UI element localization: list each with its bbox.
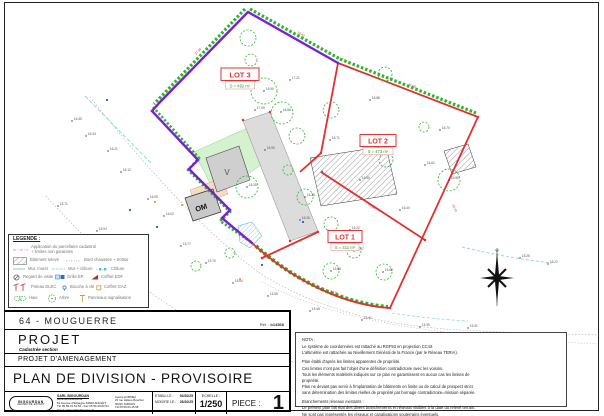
legend-box: LEGENDE : Application du parcellaire cad… (8, 234, 149, 308)
spot-point (280, 111, 281, 112)
legend-item-label: Bouche à clé (70, 285, 92, 290)
spot-elevation-label: 16.43 (88, 132, 96, 136)
firm-details: SARL BIGOURDAN Géomètres-Experts 51 Aven… (57, 392, 152, 414)
spot-elevation-label: 16.86 (283, 108, 291, 112)
etabli-date: 03/10/25 (180, 394, 193, 398)
courtyard (243, 112, 318, 241)
spot-elevation-label: 16.58 (451, 176, 459, 180)
haie-icon (13, 295, 27, 302)
edge-length-label: 26.42 (451, 204, 458, 213)
spot-point (267, 295, 268, 296)
spot-elevation-label: 16.12 (123, 168, 131, 172)
spot-elevation-label: 15.22 (550, 260, 558, 264)
lot2-area: S = 473 m² (368, 149, 389, 154)
spot-elevation-label: 15.26 (522, 254, 530, 258)
legend-item-label: Coffret EDF (101, 275, 123, 280)
boundary-road-purple (152, 12, 338, 243)
spot-elevation-label: 16.35 (307, 193, 315, 197)
coffret-gaz-icon (154, 201, 156, 203)
legend-title: LEGENDE : (13, 237, 144, 243)
spot-point (263, 90, 264, 91)
spot-elevation-label: 15.48 (312, 307, 320, 311)
spot-point (382, 271, 383, 272)
edge-length-label: 21.60 (367, 202, 376, 210)
wall-fence-icon (52, 267, 66, 271)
etabli-label: ETABLI LE : (155, 394, 173, 398)
spot-point (289, 79, 290, 80)
scale-value: 1/250 (196, 399, 226, 409)
spot-elevation-label: 16.55 (362, 176, 370, 180)
spot-point (361, 319, 362, 320)
nota-line: Ne sont pas représentés les réseaux et c… (302, 412, 560, 416)
nota-lines: Le système de coordonnées est rattaché a… (302, 344, 560, 416)
spot-elevation-label: 15.35 (422, 323, 430, 327)
spot-point (369, 99, 370, 100)
spot-elevation-label: 17.21 (292, 76, 300, 80)
spot-elevation-label: 16.22 (352, 226, 360, 230)
tree-icon (245, 54, 257, 66)
spot-point (120, 171, 121, 172)
spot-point (419, 326, 420, 327)
ref-value: b14568 (270, 322, 284, 327)
cadastral-line-icon (13, 247, 29, 253)
spot-elevation-label: 16.02 (166, 212, 174, 216)
spot-point (96, 230, 97, 231)
spot-elevation-label: 15.77 (183, 242, 191, 246)
lot1-label: LOT 1 S = 411 m² (328, 231, 362, 251)
tree-icon (225, 248, 235, 258)
spot-point (180, 245, 181, 246)
spot-elevation-label: 16.30 (302, 216, 310, 220)
lot2-name: LOT 2 (368, 139, 388, 146)
title-block: 64 - MOUGUERRE Réf. : b14568 PROJET Cada… (4, 310, 291, 412)
spot-point (329, 139, 330, 140)
bouche-a-cle-icon (261, 264, 263, 266)
spot-point (309, 310, 310, 311)
building-hatch-icon (13, 257, 28, 265)
legend-item-label: Arbre (59, 296, 75, 301)
legend-item-label: Panneaux signalisation (88, 296, 131, 301)
lot1-area: S = 411 m² (335, 245, 356, 250)
wall-line-icon (13, 267, 26, 271)
bouche-a-cle-icon (156, 226, 158, 228)
firm-logo: BIGOURDAN GÉOMÈTRE-EXPERT (5, 392, 57, 414)
spot-point (205, 262, 206, 263)
spot-elevation-label: 15.64 (235, 279, 243, 283)
piece-label: PIECE : (232, 399, 260, 408)
spot-elevation-label: 15.55 (270, 292, 278, 296)
modifie-label: MODIFIE LE : (155, 400, 176, 404)
bouche-a-cle-icon (61, 285, 68, 291)
spot-point (85, 135, 86, 136)
spot-elevation-label: 15.80 (385, 268, 393, 272)
spot-point (163, 215, 164, 216)
legend-item-label: Mur, muret (28, 267, 48, 272)
spot-elevation-label: 16.21 (110, 147, 118, 151)
tree-icon (324, 217, 338, 231)
commune-title: 64 - MOUGUERRE (19, 316, 118, 326)
tree-icon (419, 122, 429, 132)
spot-elevation-label: 16.40 (402, 206, 410, 210)
legend-item-label: Grille EP (67, 275, 87, 280)
spot-point (424, 164, 425, 165)
spot-elevation-label: 16.70 (442, 126, 450, 130)
coffret-gaz-icon (96, 285, 102, 291)
legend-item-label: Poteau ELEC (31, 285, 57, 290)
spot-point (71, 120, 72, 121)
reference: Réf. : b14568 (260, 322, 284, 327)
spot-point (359, 179, 360, 180)
spot-point (107, 150, 108, 151)
spot-point (399, 209, 400, 210)
spot-elevation-label: 16.28 (249, 183, 257, 187)
piece-number: 1 (273, 392, 284, 415)
spot-elevation-label: 16.95 (266, 87, 274, 91)
bouche-a-cle-icon (129, 209, 131, 211)
drawing-sheet: 16.4516.4316.2115.7115.9416.1216.0516.02… (0, 0, 604, 416)
spot-elevation-label: 16.90 (267, 146, 275, 150)
nota-box: NOTA : Le système de coordonnées est rat… (295, 332, 567, 407)
spot-point (299, 219, 300, 220)
coffret-gaz-icon (239, 278, 241, 280)
tree-icon (191, 261, 201, 271)
spot-point (467, 327, 468, 328)
ref-label: Réf. : (260, 322, 270, 327)
spot-point (147, 198, 148, 199)
panneaux-icon (79, 294, 86, 303)
spot-point (330, 270, 331, 271)
spot-point (246, 186, 247, 187)
firm-line: Email : bigourdan@orange.fr (57, 409, 115, 413)
poteau-elec-icon (13, 283, 29, 292)
scale-label: ECHELLE : (196, 394, 226, 398)
coffret-edf-icon (91, 274, 99, 280)
lot1-name: LOT 1 (335, 235, 355, 242)
spot-elevation-label: 16.71 (332, 136, 340, 140)
spot-point (232, 282, 233, 283)
lot3-area: S = 492 m² (230, 83, 251, 88)
spot-elevation-label: 15.94 (99, 227, 107, 231)
scale-cell: ECHELLE : 1/250 (195, 392, 226, 414)
lot3-name: LOT 3 (229, 71, 250, 80)
grille-ep-icon (55, 274, 65, 280)
cadastre-note: Cadastrée section (19, 347, 58, 352)
legend-item-label: Mur + clôture (68, 267, 92, 272)
spot-elevation-label: 16.05 (150, 195, 158, 199)
dates-cell: ETABLI LE : 03/10/25 MODIFIE LE : 28/10/… (152, 392, 195, 414)
parking-label: V (224, 168, 230, 177)
legend-item-label: Clôture (111, 267, 125, 272)
legend-item-label: Bord chaussée + trottoir (84, 258, 129, 263)
spot-point (439, 129, 440, 130)
spot-point (547, 263, 548, 264)
spot-elevation-label: 16.62 (427, 161, 435, 165)
spot-elevation-label: 15.70 (208, 259, 216, 263)
modifie-date: 28/10/25 (180, 400, 193, 404)
tree-icon (240, 30, 256, 46)
piece-cell: PIECE : 1 (226, 392, 289, 414)
legend-item-label: Regard de visite (23, 275, 51, 280)
project-heading: PROJET (18, 332, 81, 347)
spot-elevation-label: 15.31 (470, 324, 478, 328)
project-subtitle: PROJET D'AMENAGEMENT (5, 353, 289, 366)
north-arrow-icon (480, 249, 514, 306)
spot-point (519, 257, 520, 258)
spot-point (57, 205, 58, 206)
spot-point (264, 149, 265, 150)
fence-icon (96, 267, 109, 272)
coffret-gaz-icon (181, 204, 183, 206)
spot-point (448, 179, 449, 180)
tree-icon (271, 102, 293, 124)
legend-item-label: Coffret GAZ (104, 285, 126, 290)
spot-elevation-label: 15.88 (333, 267, 341, 271)
nota-title: NOTA : (302, 337, 560, 343)
spot-elevation-label: 15.41 (364, 316, 372, 320)
spot-elevation-label: 16.88 (372, 96, 380, 100)
spot-point (304, 196, 305, 197)
manhole-icon (13, 274, 21, 281)
spot-point (254, 109, 255, 110)
spot-elevation-label: 16.45 (74, 117, 82, 121)
arbre-icon (47, 294, 57, 303)
spot-elevation-label: 17.05 (257, 106, 265, 110)
plan-title: PLAN DE DIVISION - PROVISOIRE (5, 366, 289, 391)
road-edge-icon (66, 259, 82, 263)
bouche-a-cle-icon (302, 221, 304, 223)
lot3-label: LOT 3 S = 492 m² (221, 68, 259, 89)
legend-item-label: Bâtiment relevé (30, 258, 62, 263)
logo-subtitle: GÉOMÈTRE-EXPERT (17, 404, 45, 406)
legend-item-label: Haie (29, 296, 43, 301)
bouche-a-cle-icon (106, 99, 108, 101)
tree-icon (289, 128, 305, 144)
legend-item-label: + limites non garanties (31, 250, 96, 255)
building-hatched-small (444, 144, 476, 174)
lot2-label: LOT 2 S = 473 m² (360, 135, 396, 155)
spot-elevation-label: 15.71 (60, 202, 68, 206)
firm-office2-line: Tél 05.59.64.15.58 (115, 406, 151, 410)
